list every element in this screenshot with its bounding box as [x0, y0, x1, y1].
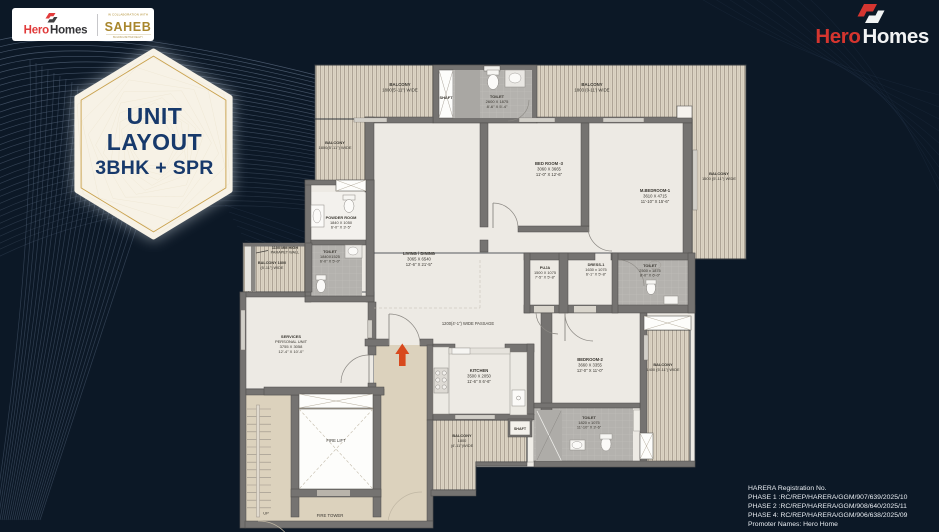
svg-text:11'-10" X 3'-6": 11'-10" X 3'-6" — [577, 425, 602, 430]
svg-text:3610 X 4715: 3610 X 4715 — [643, 193, 667, 198]
svg-text:(4'-11")WIDE: (4'-11")WIDE — [451, 443, 474, 448]
svg-text:3065 X 6540: 3065 X 6540 — [407, 256, 431, 261]
svg-text:BEDROOM-2: BEDROOM-2 — [577, 357, 603, 362]
svg-text:12'-4" X 10'-0": 12'-4" X 10'-0" — [278, 349, 304, 354]
svg-text:FIRE LIFT: FIRE LIFT — [326, 438, 346, 443]
svg-text:12'-0" X 11'-0": 12'-0" X 11'-0" — [577, 368, 604, 373]
svg-text:3060 X 3665: 3060 X 3665 — [537, 166, 561, 171]
svg-text:6'-0" X 3'-5": 6'-0" X 3'-5" — [331, 225, 352, 230]
svg-text:KITCHEN: KITCHEN — [470, 368, 489, 373]
svg-text:M.BEDROOM-1: M.BEDROOM-1 — [640, 188, 671, 193]
svg-text:LIVING / DINING: LIVING / DINING — [403, 251, 435, 256]
svg-text:11'-6" X 6'-6": 11'-6" X 6'-6" — [467, 379, 491, 384]
svg-text:FIRE TOWER: FIRE TOWER — [317, 513, 344, 518]
svg-text:BED ROOM -3: BED ROOM -3 — [535, 161, 564, 166]
svg-text:(5'-11") WIDE: (5'-11") WIDE — [261, 266, 284, 270]
svg-text:1200(4'-1") WIDE PASSAGE: 1200(4'-1") WIDE PASSAGE — [442, 321, 494, 326]
svg-text:1400 (5'-11") WIDE: 1400 (5'-11") WIDE — [646, 367, 680, 372]
svg-text:Homes: Homes — [50, 25, 87, 37]
svg-text:BUILDING BETTER REALTY: BUILDING BETTER REALTY — [113, 36, 143, 39]
svg-text:3660 X 3355: 3660 X 3355 — [578, 362, 602, 367]
svg-text:11'-0" X 12'-6": 11'-0" X 12'-6" — [536, 172, 563, 177]
svg-text:11'-10" X 15'-6": 11'-10" X 15'-6" — [641, 199, 670, 204]
svg-text:8'-6" X 5'-4": 8'-6" X 5'-4" — [487, 104, 508, 109]
svg-text:SHAFT: SHAFT — [440, 95, 454, 100]
svg-text:1803 (0-11') WIDE: 1803 (0-11') WIDE — [574, 87, 609, 92]
svg-text:BALCONY: BALCONY — [389, 82, 410, 87]
svg-text:BALCONY: BALCONY — [581, 82, 602, 87]
svg-text:3BHK + SPR: 3BHK + SPR — [95, 157, 213, 179]
svg-text:UP: UP — [263, 511, 269, 516]
svg-text:6'-0" X 5'-0": 6'-0" X 5'-0" — [320, 259, 341, 264]
svg-text:1800(5'-11") WIDE: 1800(5'-11") WIDE — [382, 87, 418, 92]
svg-text:SHAFT: SHAFT — [514, 427, 527, 431]
svg-text:UNIT: UNIT — [127, 103, 183, 129]
svg-text:3500 X 2050: 3500 X 2050 — [467, 373, 491, 378]
svg-text:LAYOUT: LAYOUT — [107, 129, 202, 155]
svg-text:1800(5'-11") WIDE: 1800(5'-11") WIDE — [318, 145, 351, 150]
svg-text:1100 MM HIGH: 1100 MM HIGH — [272, 246, 298, 250]
svg-text:Hero: Hero — [24, 25, 50, 37]
svg-text:1500 (5'-11") WIDE: 1500 (5'-11") WIDE — [702, 176, 736, 181]
svg-text:SAHEB: SAHEB — [105, 20, 152, 34]
svg-text:IN COLLABORATION WITH: IN COLLABORATION WITH — [108, 13, 148, 17]
svg-text:BALCONY 1800: BALCONY 1800 — [258, 261, 286, 265]
svg-text:Homes: Homes — [863, 25, 929, 48]
svg-text:7'-5" X 5'-8": 7'-5" X 5'-8" — [535, 275, 556, 280]
svg-text:12'-6" X 21'-5": 12'-6" X 21'-5" — [406, 262, 433, 267]
svg-text:Hero: Hero — [815, 25, 860, 48]
svg-text:6'-1" X 5'-8": 6'-1" X 5'-8" — [586, 272, 607, 277]
svg-text:8'-0" X 6'-0": 8'-0" X 6'-0" — [640, 273, 661, 278]
svg-text:PARAPET WALL: PARAPET WALL — [271, 251, 300, 255]
